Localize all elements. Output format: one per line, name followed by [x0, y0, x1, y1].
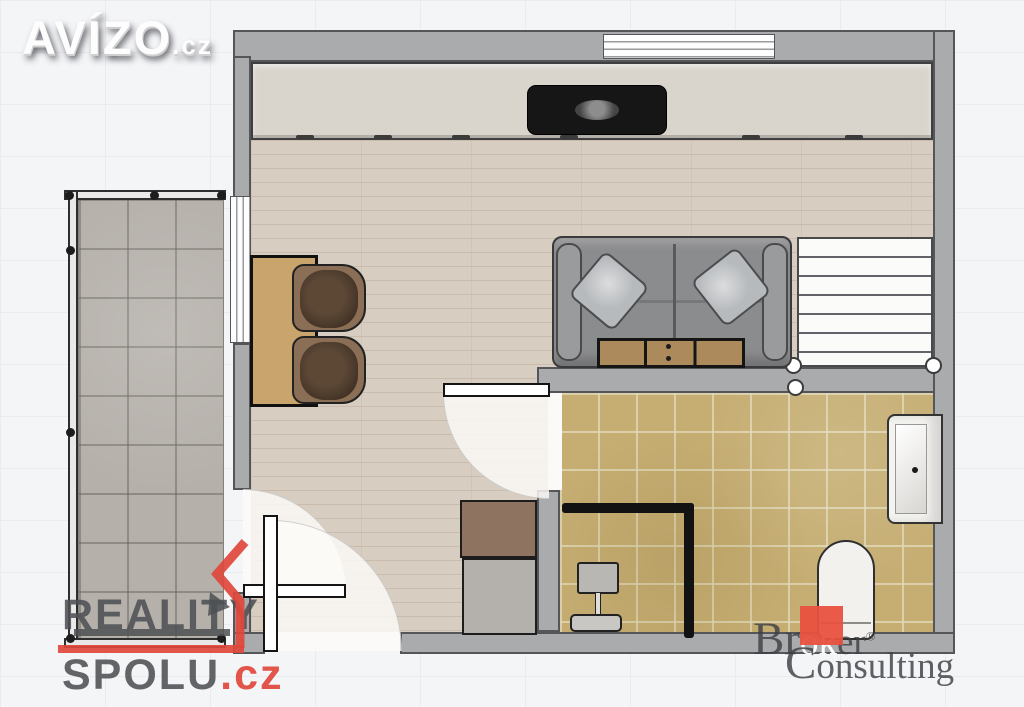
reality-logo-line2-text: SPOLU	[62, 651, 220, 699]
cabinet-handle	[845, 135, 863, 139]
chair-cushion	[300, 270, 358, 328]
shower-glass-vertical	[684, 503, 694, 638]
washbasin	[887, 414, 943, 524]
washbasin-bowl	[895, 424, 927, 514]
balcony-railing-left	[68, 190, 78, 648]
window-left	[230, 196, 251, 343]
reality-logo-roof-shape	[200, 528, 264, 660]
bathroom-door-threshold	[548, 393, 562, 490]
broker-logo-red-square	[800, 606, 843, 645]
railing-post	[217, 191, 226, 200]
cabinet-handle	[452, 135, 470, 139]
railing-post	[66, 428, 75, 437]
stairs	[797, 237, 933, 367]
hall-appliance	[462, 558, 537, 635]
railing-post	[66, 246, 75, 255]
tv	[527, 85, 667, 135]
avizo-watermark: AVÍZO.cz	[22, 10, 213, 65]
wall-left-middle	[233, 343, 251, 490]
shower-glass-horizontal	[562, 503, 694, 513]
avizo-logo-tld: .cz	[172, 30, 213, 60]
avizo-logo-text: AVÍZO	[22, 11, 172, 64]
sofa-armrest	[762, 243, 788, 361]
chair	[292, 264, 366, 332]
floorplan-screenshot: AVÍZO.cz REALITY SPOLU.cz Broker® Consul…	[0, 0, 1024, 707]
chair-cushion	[300, 342, 358, 400]
wall-left-upper	[233, 56, 251, 198]
cabinet-handle	[374, 135, 392, 139]
stair-newel	[925, 357, 942, 374]
sideboard-knob	[666, 344, 671, 349]
wall-hall-bath	[537, 490, 560, 632]
window-top	[603, 34, 775, 59]
broker-logo-line2: Consulting	[785, 640, 954, 687]
bathroom-door-leaf	[443, 383, 550, 397]
stair-newel	[787, 379, 804, 396]
reality-logo-line2: SPOLU.cz	[62, 654, 284, 697]
wall-top	[233, 30, 955, 62]
wall-right	[933, 30, 955, 654]
sideboard	[597, 338, 745, 368]
balcony-railing-top	[64, 190, 226, 200]
cabinet-handle	[742, 135, 760, 139]
broker-logo-line2-rest: onsulting	[816, 646, 954, 687]
cabinet-handle	[560, 135, 578, 139]
tv-emblem	[575, 100, 619, 120]
railing-post	[150, 191, 159, 200]
shower-head-panel	[577, 562, 619, 594]
shower-faucet	[570, 614, 622, 632]
wall-living-bath	[537, 367, 935, 393]
sideboard-knob	[666, 356, 671, 361]
cabinet-handle	[296, 135, 314, 139]
railing-post	[65, 191, 74, 200]
chair	[292, 336, 366, 404]
hall-cabinet	[460, 500, 537, 558]
